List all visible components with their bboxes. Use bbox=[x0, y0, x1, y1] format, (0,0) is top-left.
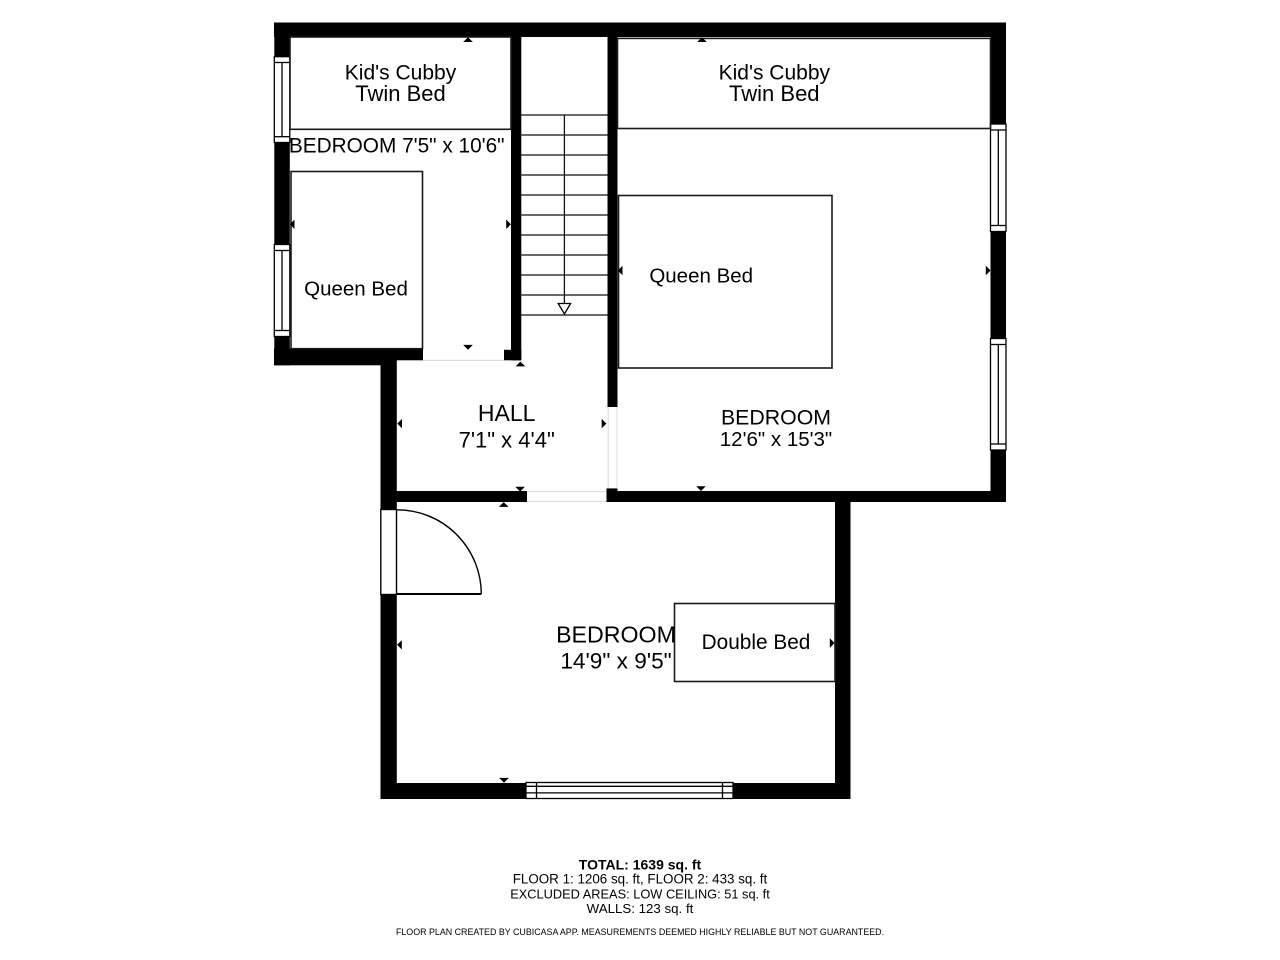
svg-text:WALLS: 123 sq. ft: WALLS: 123 sq. ft bbox=[587, 901, 694, 916]
svg-text:EXCLUDED AREAS: LOW CEILING: 5: EXCLUDED AREAS: LOW CEILING: 51 sq. ft bbox=[510, 887, 770, 902]
svg-text:HALL: HALL bbox=[478, 400, 536, 426]
svg-text:Twin Bed: Twin Bed bbox=[355, 81, 446, 106]
svg-text:BEDROOM 7'5" x 10'6": BEDROOM 7'5" x 10'6" bbox=[289, 134, 505, 157]
svg-text:Queen Bed: Queen Bed bbox=[649, 265, 753, 288]
svg-text:FLOOR 1: 1206 sq. ft, FLOOR 2:: FLOOR 1: 1206 sq. ft, FLOOR 2: 433 sq. f… bbox=[513, 872, 768, 887]
svg-text:TOTAL: 1639 sq. ft: TOTAL: 1639 sq. ft bbox=[579, 856, 702, 872]
svg-text:7'1" x 4'4": 7'1" x 4'4" bbox=[459, 427, 555, 452]
svg-text:FLOOR PLAN CREATED BY CUBICASA: FLOOR PLAN CREATED BY CUBICASA APP. MEAS… bbox=[396, 927, 884, 937]
svg-text:Double Bed: Double Bed bbox=[702, 631, 811, 654]
svg-text:14'9" x 9'5": 14'9" x 9'5" bbox=[560, 648, 671, 673]
svg-text:Twin Bed: Twin Bed bbox=[729, 81, 820, 106]
svg-text:BEDROOM: BEDROOM bbox=[556, 622, 676, 648]
svg-text:12'6" x 15'3": 12'6" x 15'3" bbox=[720, 428, 832, 451]
svg-text:BEDROOM: BEDROOM bbox=[721, 405, 831, 429]
svg-text:Queen Bed: Queen Bed bbox=[304, 277, 408, 300]
